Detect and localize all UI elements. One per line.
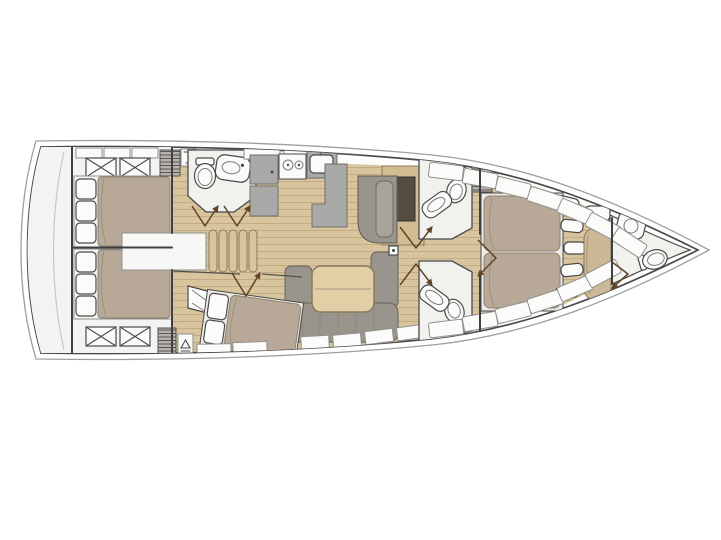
nav-settee-cushion	[376, 181, 393, 237]
vent-locker	[453, 346, 477, 358]
fridge-handle	[271, 171, 274, 174]
pillow	[76, 252, 96, 272]
pillow	[76, 274, 96, 294]
sofa-right-arm	[371, 252, 398, 308]
deck-locker	[132, 148, 158, 158]
pillow	[76, 179, 96, 199]
deck-hatch-icon	[120, 158, 150, 177]
deck-locker	[76, 148, 102, 158]
pillow	[76, 296, 96, 316]
vent-locker	[158, 328, 176, 354]
deck-hatch-icon	[120, 327, 150, 346]
floor-plan-canvas	[0, 0, 721, 540]
nav-station	[358, 166, 424, 245]
shower-drain-icon	[178, 334, 193, 353]
pillow	[207, 293, 229, 320]
companionway	[122, 230, 257, 272]
pillow	[76, 223, 96, 243]
toilet-icon	[195, 158, 216, 189]
stove-icon	[279, 154, 306, 179]
companionway-landing	[122, 233, 206, 270]
mast-post	[389, 246, 398, 255]
deck-locker	[104, 148, 130, 158]
deck-hatch-icon	[86, 327, 116, 346]
refrigerator	[250, 155, 278, 184]
pillow	[203, 320, 225, 345]
ladder-steps	[209, 230, 257, 272]
yacht-floor-plan	[0, 0, 721, 540]
deck-hatch-icon	[86, 158, 116, 177]
galley-counter	[250, 186, 278, 216]
pillow	[76, 201, 96, 221]
vent-locker	[160, 150, 180, 176]
